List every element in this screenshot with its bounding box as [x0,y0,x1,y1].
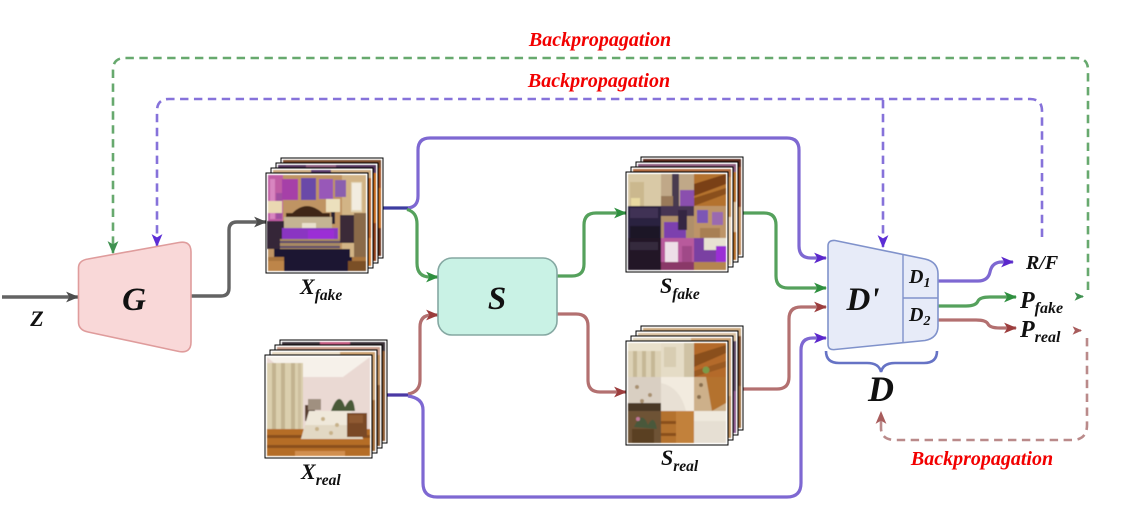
svg-text:Z: Z [29,306,43,331]
svg-text:G: G [122,282,146,318]
svg-text:Sfake: Sfake [660,273,700,303]
svg-text:Backpropagation: Backpropagation [527,70,670,92]
svg-text:Backpropagation: Backpropagation [528,29,671,51]
svg-text:Pfake: Pfake [1019,288,1063,317]
svg-text:D': D' [846,282,880,318]
svg-text:Sreal: Sreal [661,445,699,475]
svg-text:D: D [867,369,894,409]
svg-text:Xfake: Xfake [299,274,342,304]
svg-text:R/F: R/F [1025,252,1059,274]
svg-text:Xreal: Xreal [300,459,341,489]
svg-text:Backpropagation: Backpropagation [910,448,1053,470]
svg-text:Preal: Preal [1019,317,1061,346]
svg-text:S: S [488,281,506,317]
